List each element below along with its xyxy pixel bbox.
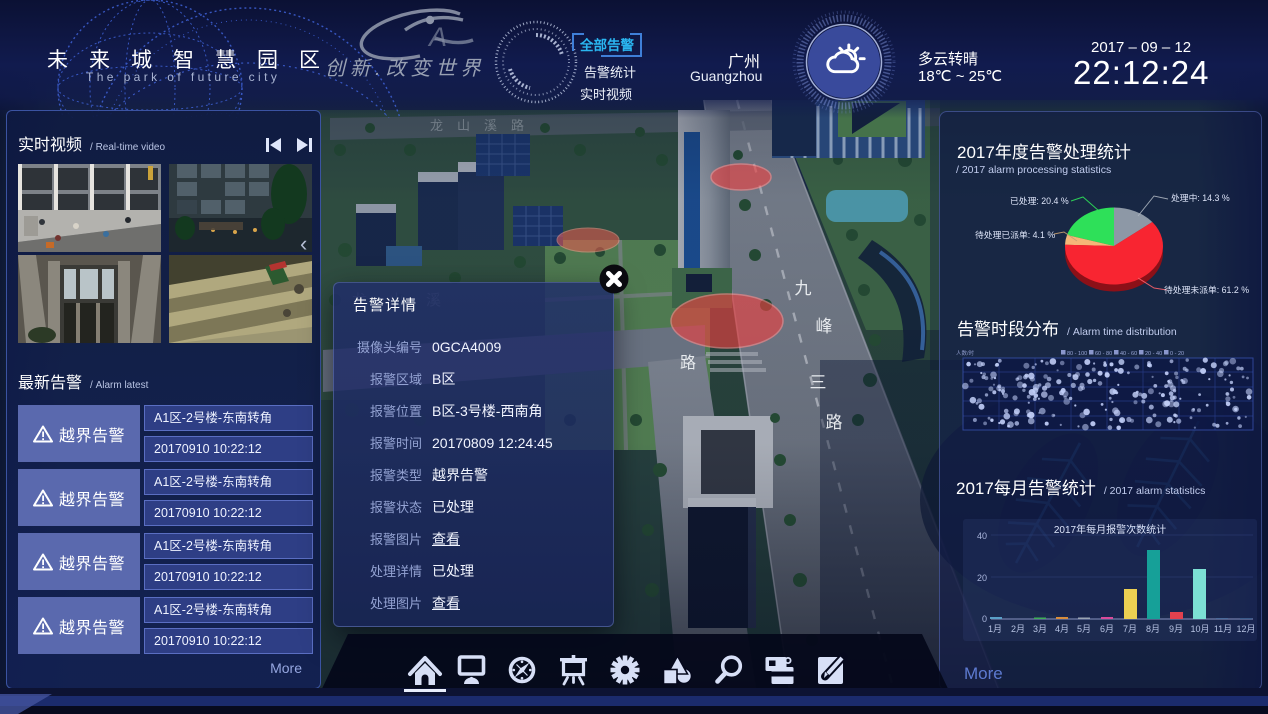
svg-text:20 - 40: 20 - 40 [1145, 351, 1162, 357]
svg-text:A: A [427, 22, 447, 52]
svg-text:已处理: 20.4 %: 已处理: 20.4 % [1010, 195, 1069, 206]
svg-text:60 - 80: 60 - 80 [1095, 351, 1112, 357]
svg-text:人数/时: 人数/时 [956, 349, 975, 357]
svg-text:九: 九 [795, 279, 812, 298]
svg-text:待处理未派单: 61.2 %: 待处理未派单: 61.2 % [1164, 284, 1249, 295]
svg-text:待处理已派单: 4.1 %: 待处理已派单: 4.1 % [975, 229, 1055, 240]
svg-text:处理中: 14.3 %: 处理中: 14.3 % [1171, 192, 1230, 203]
svg-text:40: 40 [977, 531, 987, 541]
svg-text:三: 三 [810, 373, 827, 392]
svg-text:2017年每月报警次数统计: 2017年每月报警次数统计 [1054, 523, 1166, 536]
svg-text:峰: 峰 [816, 317, 833, 336]
svg-text:0: 0 [982, 614, 987, 624]
svg-text:0 - 20: 0 - 20 [1170, 351, 1184, 357]
svg-text:80 - 100: 80 - 100 [1067, 351, 1087, 357]
svg-text:40 - 60: 40 - 60 [1120, 351, 1137, 357]
svg-text:20: 20 [977, 573, 987, 583]
svg-text:路: 路 [826, 413, 843, 432]
svg-text:龙山溪路: 龙山溪路 [430, 118, 538, 133]
svg-text:路: 路 [680, 354, 696, 372]
